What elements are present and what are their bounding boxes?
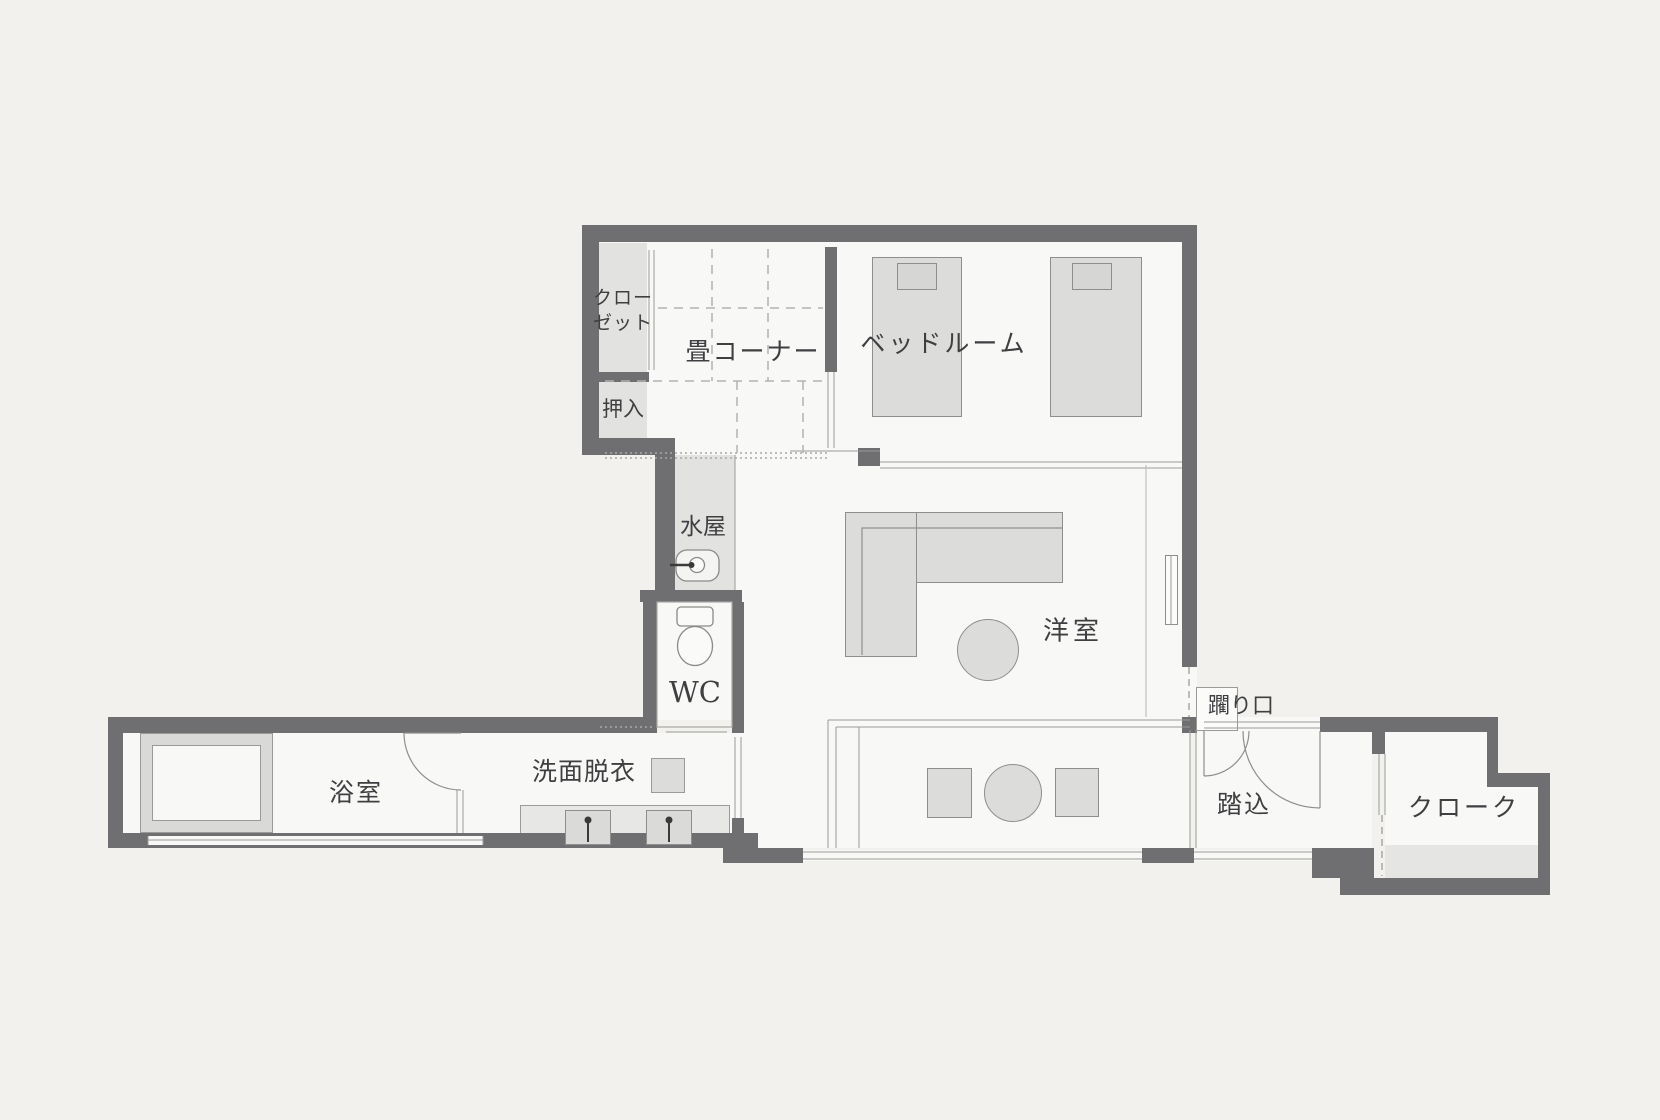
wall-bottom-b (1142, 848, 1194, 863)
window-bottom-entry (1194, 850, 1312, 861)
wall-tatami-stub (858, 448, 880, 466)
veranda-entry-divider (1190, 730, 1196, 848)
vanity-sink-1 (565, 810, 611, 845)
cloak-floor-upper (1385, 732, 1487, 775)
sofa-chaise (845, 512, 917, 657)
bed-1-pillow (897, 263, 937, 290)
wall-mizuya-bottom (640, 590, 742, 602)
label-closet-line1: クロー (593, 286, 653, 311)
wall-closet-divider (599, 372, 649, 382)
veranda-chair-1 (927, 768, 972, 818)
wall-wing-left (108, 717, 123, 848)
label-western-room: 洋室 (1043, 611, 1103, 648)
label-bathroom: 浴室 (329, 773, 383, 809)
wall-mizuya-left (655, 455, 675, 592)
bathtub-inner (152, 745, 261, 821)
wall-right-corner (1182, 717, 1197, 733)
round-table (957, 619, 1019, 681)
wall-cloak-bottom (1340, 878, 1550, 895)
wall-cloak-step (1487, 773, 1550, 787)
wall-wc-left (643, 602, 657, 733)
floor-plan: クロー ゼット 押入 畳コーナー ベッドルーム 水屋 WC 洋室 浴室 洗面脱衣… (0, 0, 1660, 1120)
window-element-living (1165, 555, 1178, 625)
wall-upper-left (582, 242, 599, 455)
bed-2-pillow (1072, 263, 1112, 290)
wall-wc-right (732, 602, 744, 733)
wall-tatami-partition (825, 247, 837, 372)
wall-cloak-right-upper (1487, 732, 1498, 775)
washer (651, 758, 685, 793)
wall-cloak-right-lower (1538, 787, 1550, 878)
wall-below-oshiire (582, 438, 675, 455)
opening-nijiri-wall (1182, 667, 1197, 717)
label-oshiire: 押入 (602, 393, 644, 423)
label-entry: 踏込 (1217, 785, 1271, 821)
label-nijiriguchi: 躙り口 (1208, 688, 1274, 720)
wall-entry-sw (1312, 848, 1374, 878)
window-bottom-center (803, 850, 1142, 861)
wall-right-main (1182, 242, 1197, 667)
vanity-sink-2 (646, 810, 692, 845)
wall-entry-right-stub (1372, 730, 1385, 754)
cloak-step-area (1385, 845, 1538, 878)
wc-door-lines (666, 727, 727, 732)
label-tatami-corner: 畳コーナー (685, 332, 820, 368)
veranda-chair-2 (1055, 768, 1099, 817)
wall-bottom-a (723, 848, 803, 863)
veranda-table (984, 764, 1042, 822)
window-wing-bottom (148, 836, 483, 845)
label-cloak: クローク (1408, 788, 1520, 824)
wall-entry-top (1320, 717, 1498, 732)
label-washroom: 洗面脱衣 (532, 752, 636, 788)
label-closet: クロー ゼット (593, 286, 653, 336)
label-closet-line2: ゼット (593, 311, 653, 336)
wall-top (582, 225, 1197, 242)
label-wc: WC (669, 675, 721, 709)
label-mizuya: 水屋 (680, 507, 726, 541)
label-bedroom: ベッドルーム (860, 324, 1027, 360)
wall-wing-top (108, 717, 657, 733)
